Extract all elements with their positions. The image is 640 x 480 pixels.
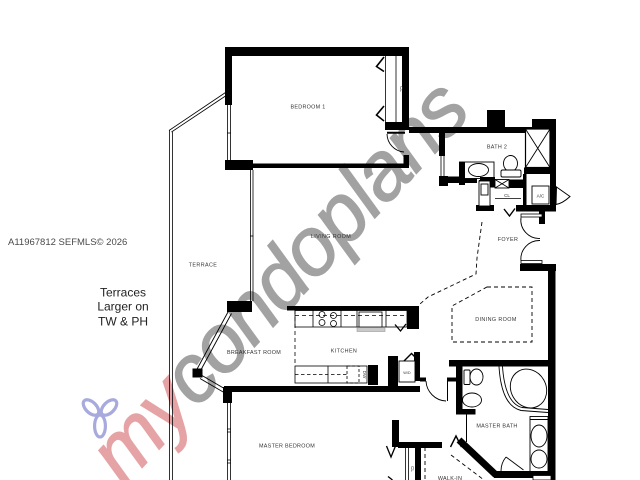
svg-text:CL: CL [504,193,510,198]
svg-text:mycondoplans: mycondoplans [71,63,486,480]
svg-text:DINING ROOM: DINING ROOM [475,317,517,323]
svg-text:BREAKFAST ROOM: BREAKFAST ROOM [227,350,281,356]
svg-text:MASTER BEDROOM: MASTER BEDROOM [259,444,315,450]
svg-text:Terraces: Terraces [100,286,146,300]
svg-text:DW: DW [362,371,367,379]
svg-text:BEDROOM 1: BEDROOM 1 [290,105,325,111]
svg-text:LIVING ROOM: LIVING ROOM [311,234,351,240]
svg-text:CL: CL [399,86,404,92]
svg-text:FOYER: FOYER [498,237,519,243]
svg-text:W/D: W/D [403,371,411,375]
svg-text:MASTER BATH: MASTER BATH [476,424,517,430]
svg-text:Larger on: Larger on [97,300,148,314]
svg-text:TW & PH: TW & PH [98,315,148,329]
svg-text:A11967812 SEFMLS© 2026: A11967812 SEFMLS© 2026 [8,237,127,248]
svg-text:BATH 2: BATH 2 [487,145,507,151]
svg-text:WALK-IN: WALK-IN [438,476,462,480]
svg-text:CL: CL [410,466,415,472]
svg-text:KITCHEN: KITCHEN [331,349,357,355]
svg-text:TERRACE: TERRACE [189,263,218,269]
svg-text:A/C: A/C [537,194,545,199]
